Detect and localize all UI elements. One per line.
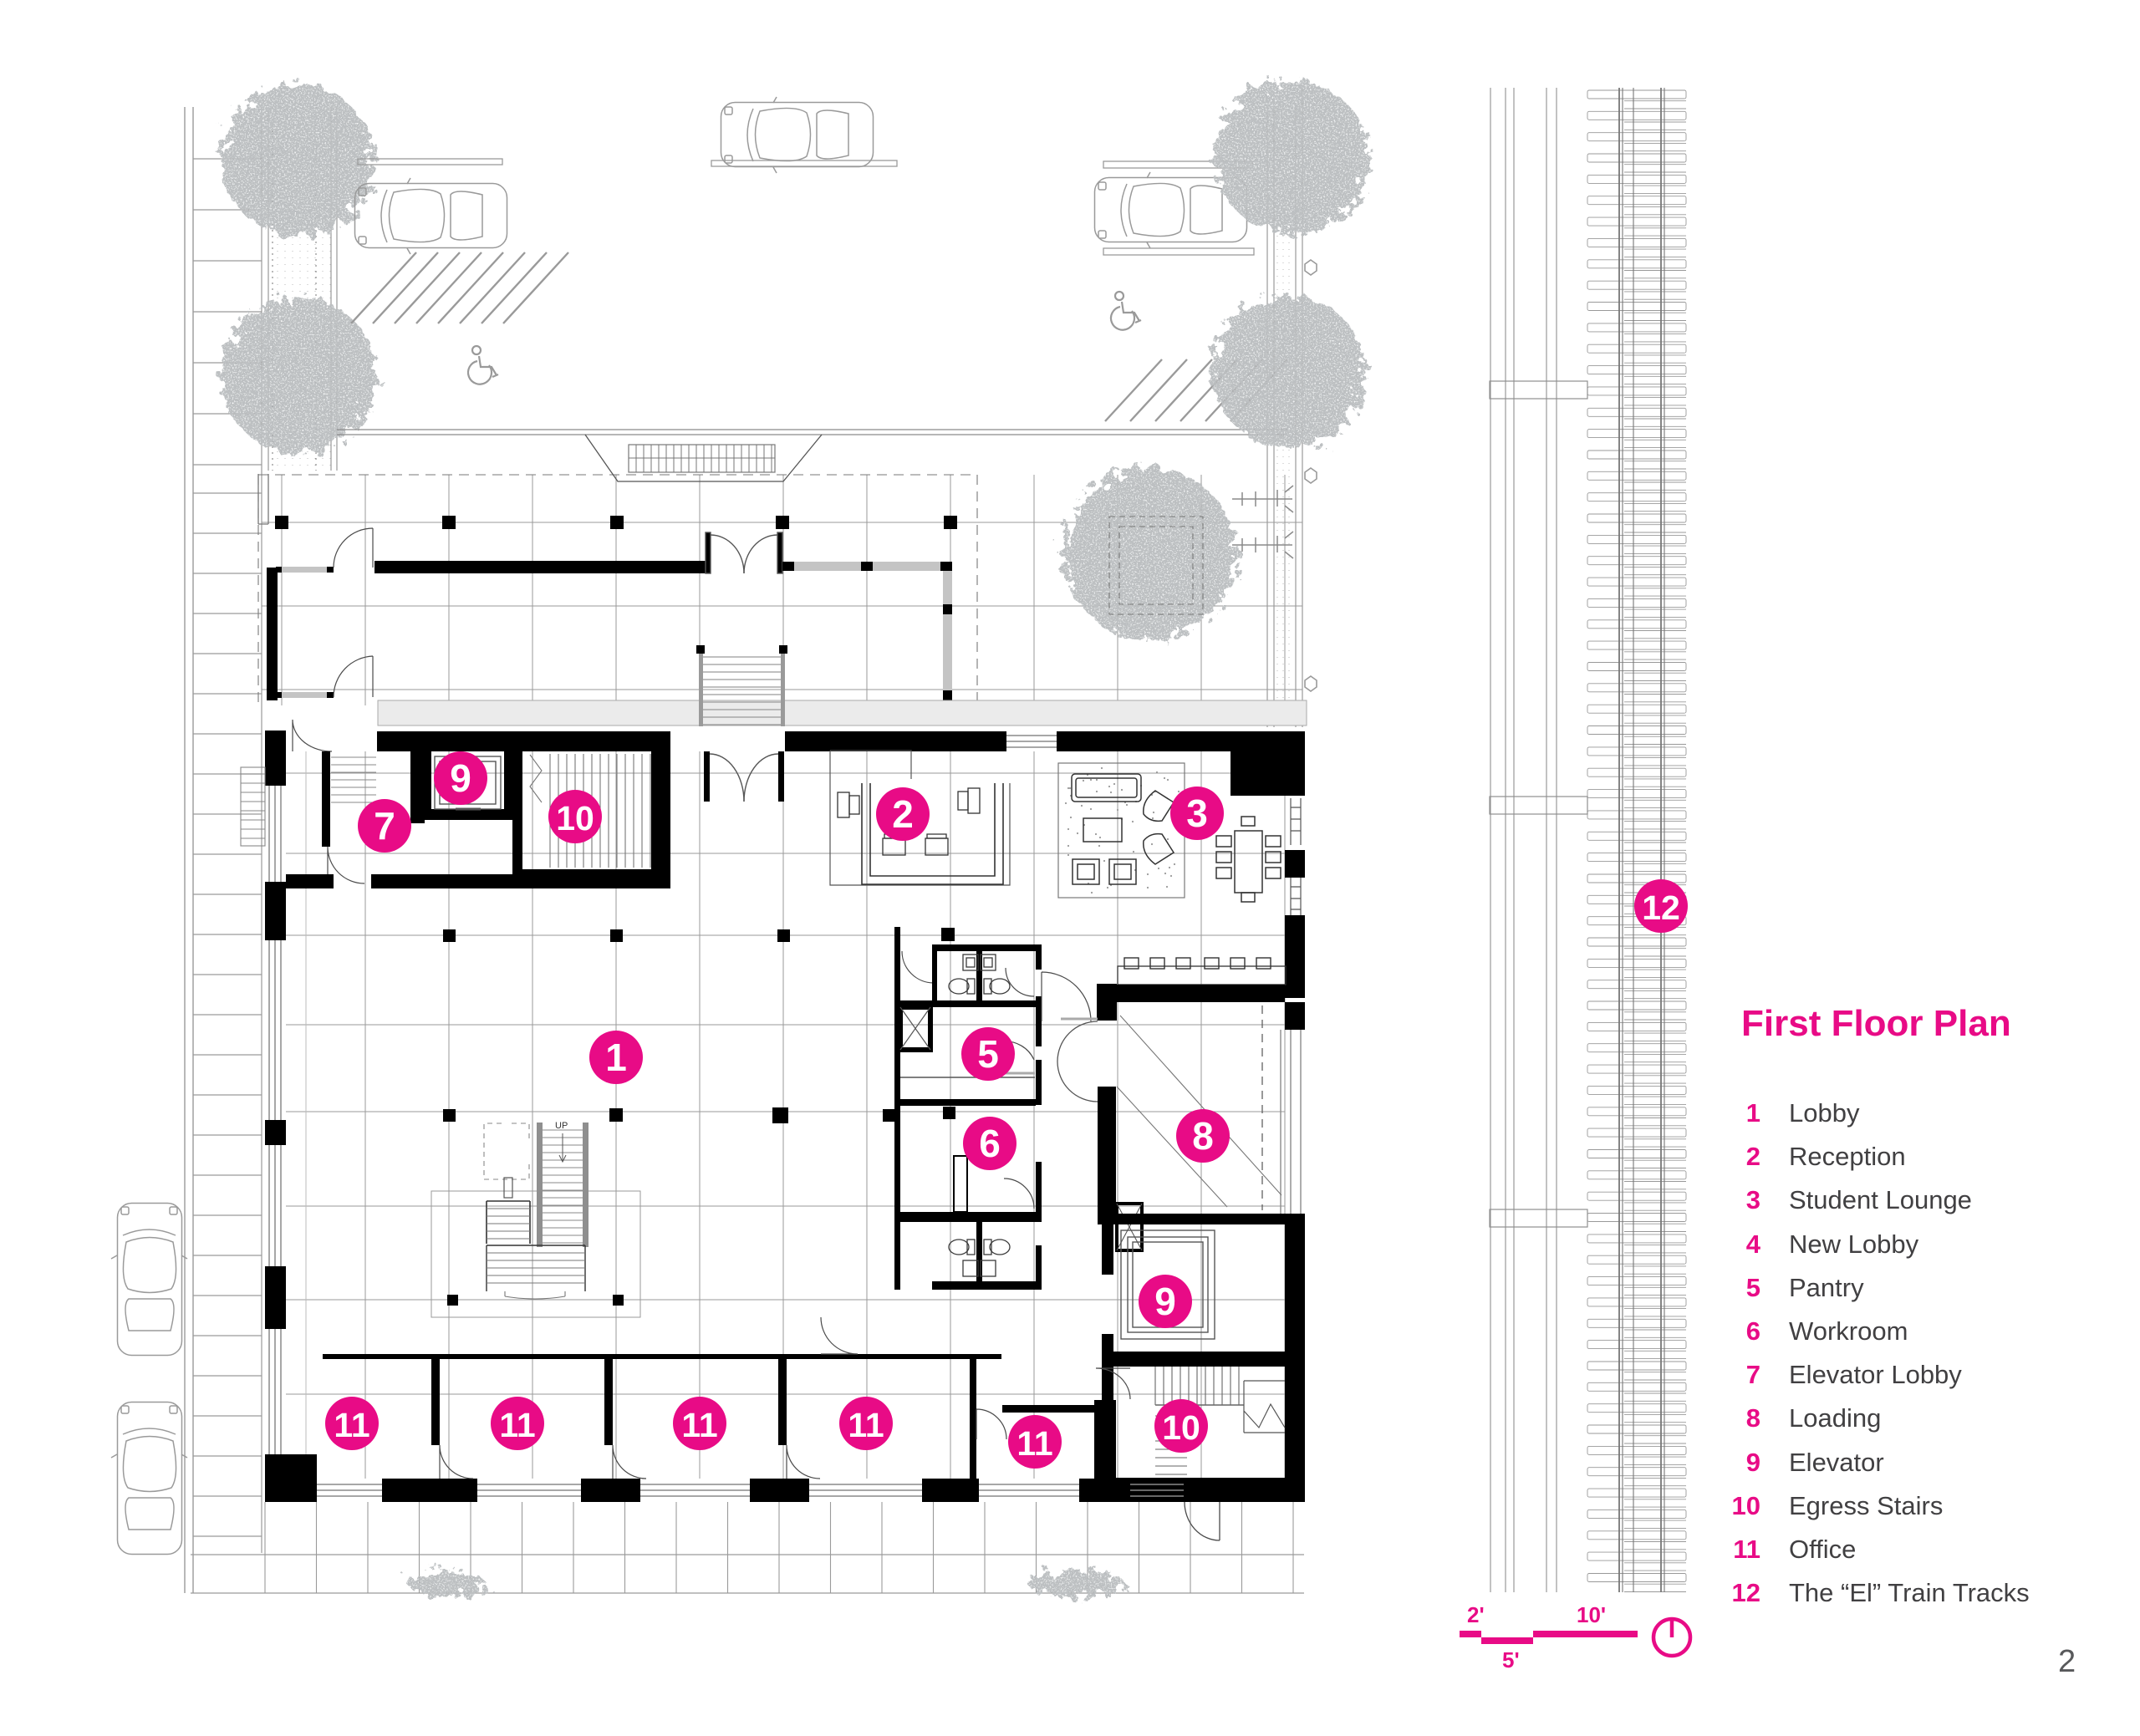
svg-text:Loading: Loading xyxy=(1789,1403,1881,1433)
svg-text:10: 10 xyxy=(1162,1408,1200,1447)
svg-text:4: 4 xyxy=(1746,1229,1761,1259)
svg-text:8: 8 xyxy=(1746,1403,1760,1433)
svg-text:3: 3 xyxy=(1186,792,1208,835)
svg-text:2: 2 xyxy=(2058,1644,2076,1679)
svg-text:2': 2' xyxy=(1467,1602,1485,1627)
svg-text:New Lobby: New Lobby xyxy=(1789,1229,1919,1259)
svg-text:12: 12 xyxy=(1642,888,1680,927)
svg-text:5': 5' xyxy=(1502,1647,1520,1672)
svg-text:Pantry: Pantry xyxy=(1789,1273,1864,1302)
svg-text:10': 10' xyxy=(1577,1602,1606,1627)
svg-text:11: 11 xyxy=(1733,1535,1760,1564)
svg-text:11: 11 xyxy=(499,1406,535,1444)
svg-text:8: 8 xyxy=(1192,1114,1214,1158)
svg-text:Student Lounge: Student Lounge xyxy=(1789,1185,1972,1214)
svg-text:3: 3 xyxy=(1746,1185,1760,1214)
svg-text:1: 1 xyxy=(605,1036,627,1079)
svg-text:6: 6 xyxy=(1746,1316,1760,1346)
svg-text:9: 9 xyxy=(1746,1448,1760,1477)
svg-text:The “El” Train Tracks: The “El” Train Tracks xyxy=(1789,1578,2030,1607)
svg-text:6: 6 xyxy=(979,1122,1001,1165)
svg-text:2: 2 xyxy=(1746,1142,1760,1171)
svg-text:Workroom: Workroom xyxy=(1789,1316,1908,1346)
svg-text:1: 1 xyxy=(1746,1098,1760,1128)
svg-text:11: 11 xyxy=(1016,1424,1052,1463)
svg-text:Elevator Lobby: Elevator Lobby xyxy=(1789,1360,1962,1389)
svg-text:Elevator: Elevator xyxy=(1789,1448,1884,1477)
svg-text:2: 2 xyxy=(892,792,914,836)
svg-text:Egress Stairs: Egress Stairs xyxy=(1789,1491,1943,1520)
svg-text:Reception: Reception xyxy=(1789,1142,1906,1171)
svg-text:9: 9 xyxy=(450,756,471,800)
svg-text:7: 7 xyxy=(1746,1360,1760,1389)
svg-text:UP: UP xyxy=(555,1121,568,1131)
svg-text:11: 11 xyxy=(334,1406,369,1444)
svg-text:9: 9 xyxy=(1154,1280,1176,1323)
svg-text:5: 5 xyxy=(1746,1273,1760,1302)
svg-text:12: 12 xyxy=(1732,1578,1760,1607)
svg-text:11: 11 xyxy=(681,1406,717,1444)
svg-text:10: 10 xyxy=(556,799,594,837)
svg-text:7: 7 xyxy=(374,804,395,848)
svg-text:11: 11 xyxy=(848,1406,884,1444)
svg-text:Lobby: Lobby xyxy=(1789,1098,1860,1128)
svg-text:Office: Office xyxy=(1789,1535,1856,1564)
svg-text:First Floor Plan: First Floor Plan xyxy=(1741,1003,2011,1044)
svg-text:5: 5 xyxy=(977,1032,999,1076)
svg-text:10: 10 xyxy=(1732,1491,1760,1520)
